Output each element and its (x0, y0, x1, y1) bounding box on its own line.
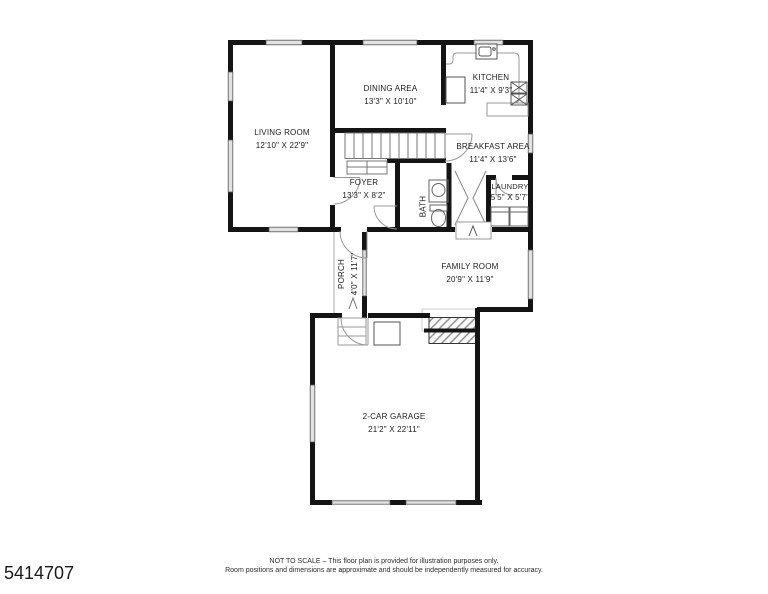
listing-id: 5414707 (4, 563, 74, 584)
room-name: LIVING ROOM (230, 126, 334, 139)
label-breakfast-area: BREAKFAST AREA 11'4" X 13'6" (441, 140, 545, 166)
closet-bifold-doors (455, 171, 486, 225)
room-name: FOYER (330, 176, 398, 189)
label-garage: 2-CAR GARAGE 21'2" X 22'11" (327, 410, 461, 436)
garage-utility-box (374, 322, 400, 345)
room-name: BREAKFAST AREA (441, 140, 545, 153)
disclaimer-line-2: Room positions and dimensions are approx… (0, 566, 768, 575)
room-dims: 20'9" X 11'9" (403, 273, 537, 286)
label-dining-area: DINING AREA 13'3" X 10'10" (338, 82, 443, 108)
toilet-icon (432, 210, 446, 227)
room-dims: 11'4" X 13'6" (441, 153, 545, 166)
label-bath: BATH (417, 185, 430, 229)
room-dims: 21'2" X 22'11" (327, 423, 461, 436)
room-dims: 5'5" X 5'7" (488, 192, 532, 203)
room-name: DINING AREA (338, 82, 443, 95)
label-living-room: LIVING ROOM 12'10" X 22'9" (230, 126, 334, 152)
entry-step (456, 222, 491, 239)
room-dims: 11'4" X 9'3" (446, 84, 536, 97)
room-dims: 13'3" X 10'10" (338, 95, 443, 108)
bath-sink-icon (432, 184, 445, 197)
floor-plan-page: LIVING ROOM 12'10" X 22'9" DINING AREA 1… (0, 0, 768, 594)
label-laundry: LAUNDRY 5'5" X 5'7" (488, 181, 532, 203)
room-name: FAMILY ROOM (403, 260, 537, 273)
room-name: LAUNDRY (488, 181, 532, 192)
label-foyer: FOYER 13'3" X 8'2" (330, 176, 398, 202)
room-name: 2-CAR GARAGE (327, 410, 461, 423)
bath-fixtures (429, 180, 448, 227)
disclaimer-line-1: NOT TO SCALE – This floor plan is provid… (0, 557, 768, 566)
deck-steps (422, 309, 478, 344)
label-porch: PORCH 4'0" X 11'7" (335, 234, 361, 314)
toilet-tank (430, 205, 447, 211)
room-dims: 12'10" X 22'9" (230, 139, 334, 152)
washer-dryer-icons (491, 207, 528, 226)
label-family-room: FAMILY ROOM 20'9" X 11'9" (403, 260, 537, 286)
room-dims: 13'3" X 8'2" (330, 189, 398, 202)
room-name: BATH (417, 185, 430, 229)
label-kitchen: KITCHEN 11'4" X 9'3" (446, 71, 536, 97)
room-name: PORCH (335, 234, 348, 314)
kitchen-sink (476, 44, 497, 59)
room-dims: 4'0" X 11'7" (348, 234, 361, 314)
room-name: KITCHEN (446, 71, 536, 84)
